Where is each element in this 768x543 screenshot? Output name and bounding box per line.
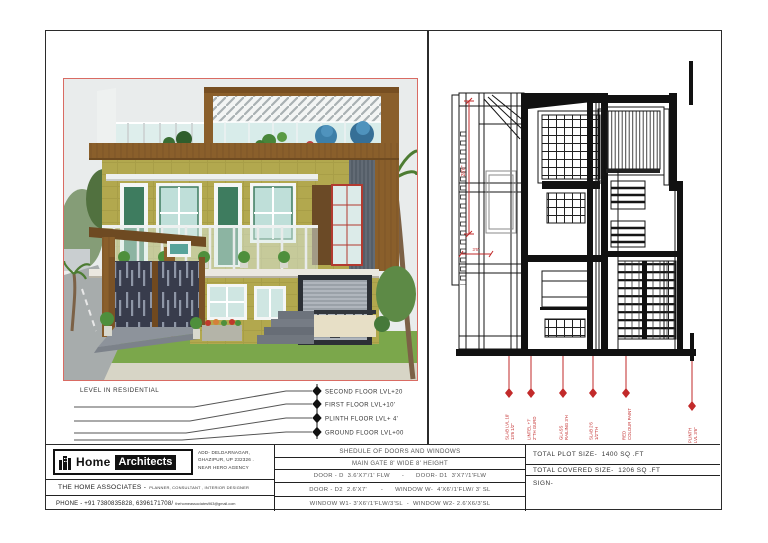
address-line: GHAZIPUR, UP 232326 . <box>198 456 272 463</box>
firm-name-row: THE HOME ASSOCIATES - PLANNER, CONSULTAN… <box>46 479 274 495</box>
schedule-row: DOOR - D 3.6'X7'/1' FLW - DOOR- D1 3'X7'… <box>275 469 525 482</box>
level-label: SECOND FLOOR LVL+20 <box>325 390 403 396</box>
elevation-drawing: 28'6" 3'6" SLAB LVL 10' 13'6 1/2" LINTEL… <box>428 31 720 444</box>
schedule-row: WINDOW W1- 3'X6'/1'FLW/3'SL - WINDOW W2-… <box>275 496 525 511</box>
dimension-label: 28'6" <box>461 165 467 176</box>
firm-name: THE HOME ASSOCIATES - <box>58 484 146 491</box>
level-label: GROUND FLOOR LVL+00 <box>325 431 404 437</box>
elevation-linework <box>452 61 696 361</box>
levels-heading: LEVEL IN RESIDENTIAL <box>80 387 159 394</box>
elevation-annotations: SLAB LVL 10' 13'6 1/2" LINTEL +7' 2"TH G… <box>505 408 699 443</box>
total-covered-size: TOTAL COVERED SIZE- 1206 SQ .FT <box>526 464 720 475</box>
house-render-image <box>63 78 418 381</box>
logo-text-architects: Architects <box>115 455 177 470</box>
shutter-hatch <box>606 111 660 169</box>
level-label: PLINTH FLOOR LVL+ 4' <box>325 417 398 423</box>
firm-phone: PHONE - +91 7380835828, 6396171708/ <box>56 501 173 507</box>
svg-text:LINTEL +7': LINTEL +7' <box>527 418 532 440</box>
svg-text:COLOUR PAINT: COLOUR PAINT <box>627 408 632 440</box>
svg-text:LVL 3'6": LVL 3'6" <box>693 427 698 443</box>
schedule-table: SHEDULE OF DOORS AND WINDOWS MAIN GATE 8… <box>274 445 525 511</box>
logo-text-home: Home <box>76 455 111 469</box>
address-line: NEAR HERO AGENCY <box>198 464 272 471</box>
totals-table: TOTAL PLOT SIZE- 1400 SQ .FT TOTAL COVER… <box>525 445 720 511</box>
firm-phone-row: PHONE - +91 7380835828, 6396171708/ theh… <box>46 495 274 511</box>
level-marker-icon <box>313 384 321 439</box>
building-icon <box>59 455 72 470</box>
total-plot-size: TOTAL PLOT SIZE- 1400 SQ .FT <box>526 445 720 464</box>
leader-arrow-icon <box>505 388 696 411</box>
schedule-row: MAIN GATE 8' WIDE 8' HEIGHT <box>275 457 525 469</box>
sign-field: SIGN- <box>526 475 720 511</box>
svg-text:1/2"TH: 1/2"TH <box>594 427 599 440</box>
svg-text:2"TH GURD: 2"TH GURD <box>532 417 537 441</box>
address-line: ADD- DELDARNAGAR, <box>198 449 272 456</box>
schedule-title: SHEDULE OF DOORS AND WINDOWS <box>275 445 525 457</box>
firm-logo-cell: Home Architects ADD- DELDARNAGAR, GHAZIP… <box>46 445 274 479</box>
title-block: Home Architects ADD- DELDARNAGAR, GHAZIP… <box>46 444 720 510</box>
schedule-row: DOOR - D2 2.6'X7' - WINDOW W- 4'X6'/1'FL… <box>275 482 525 496</box>
svg-text:SLAB 2'6: SLAB 2'6 <box>589 422 594 440</box>
svg-text:RED: RED <box>622 431 627 440</box>
svg-text:GLASS: GLASS <box>559 426 564 440</box>
firm-email: thehomeassociates963@gmail.com <box>175 502 235 506</box>
drawing-sheet: LEVEL IN RESIDENTIAL SECOND FLOOR LVL+20… <box>45 30 722 510</box>
levels-diagram: LEVEL IN RESIDENTIAL SECOND FLOOR LVL+20… <box>64 381 416 443</box>
svg-text:13'6 1/2": 13'6 1/2" <box>510 423 515 440</box>
svg-text:RAILING 3'H: RAILING 3'H <box>564 415 569 440</box>
home-architects-logo: Home Architects <box>53 449 193 475</box>
page: LEVEL IN RESIDENTIAL SECOND FLOOR LVL+20… <box>0 0 768 543</box>
second-floor <box>89 160 399 278</box>
firm-address: ADD- DELDARNAGAR, GHAZIPUR, UP 232326 . … <box>198 449 272 471</box>
firm-roles: PLANNER, CONSULTANT , INTERIOR DESIGNER <box>149 485 249 490</box>
level-label: FIRST FLOOR LVL+10' <box>325 403 395 409</box>
terrace-pergola <box>204 87 399 151</box>
dimension-label: 3'6" <box>473 247 480 252</box>
svg-text:PLINTH: PLINTH <box>688 428 693 443</box>
svg-text:SLAB LVL 10': SLAB LVL 10' <box>505 414 510 440</box>
